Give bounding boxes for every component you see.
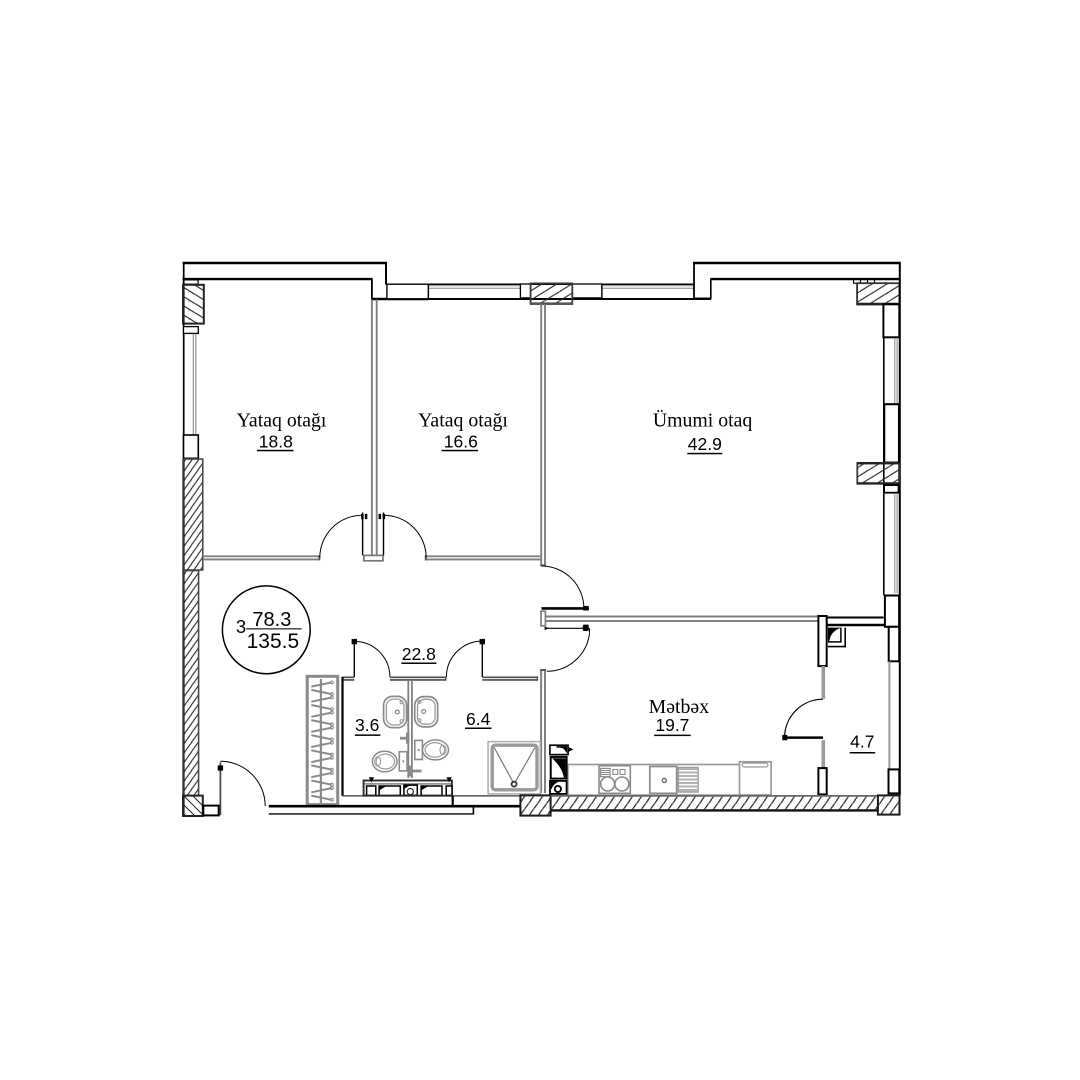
- svg-text:78.3: 78.3: [252, 609, 291, 631]
- svg-text:Yataq otağı: Yataq otağı: [418, 410, 508, 432]
- svg-text:4.7: 4.7: [850, 732, 874, 752]
- svg-text:19.7: 19.7: [655, 715, 689, 735]
- svg-text:Yataq otağı: Yataq otağı: [237, 410, 327, 432]
- svg-text:18.8: 18.8: [259, 431, 293, 451]
- svg-text:6.4: 6.4: [466, 709, 491, 729]
- svg-text:3.6: 3.6: [355, 715, 379, 735]
- svg-text:42.9: 42.9: [688, 434, 722, 454]
- svg-text:3: 3: [236, 616, 246, 637]
- svg-text:22.8: 22.8: [402, 644, 436, 664]
- svg-text:135.5: 135.5: [247, 630, 300, 653]
- svg-text:Ümumi otaq: Ümumi otaq: [653, 410, 753, 432]
- svg-text:16.6: 16.6: [444, 431, 478, 451]
